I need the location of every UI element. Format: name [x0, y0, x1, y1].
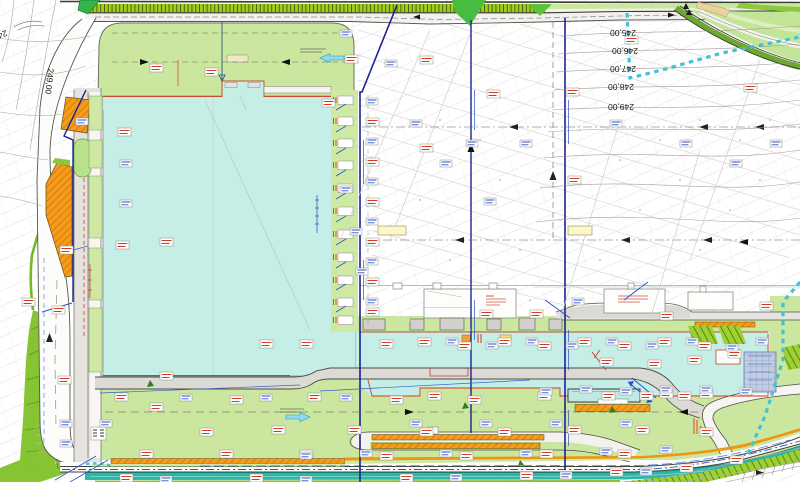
svg-text:248,00: 248,00	[608, 82, 634, 92]
svg-text:247,00: 247,00	[610, 64, 636, 74]
svg-text:246,00: 246,00	[612, 46, 638, 56]
svg-text:249,00: 249,00	[608, 102, 634, 112]
